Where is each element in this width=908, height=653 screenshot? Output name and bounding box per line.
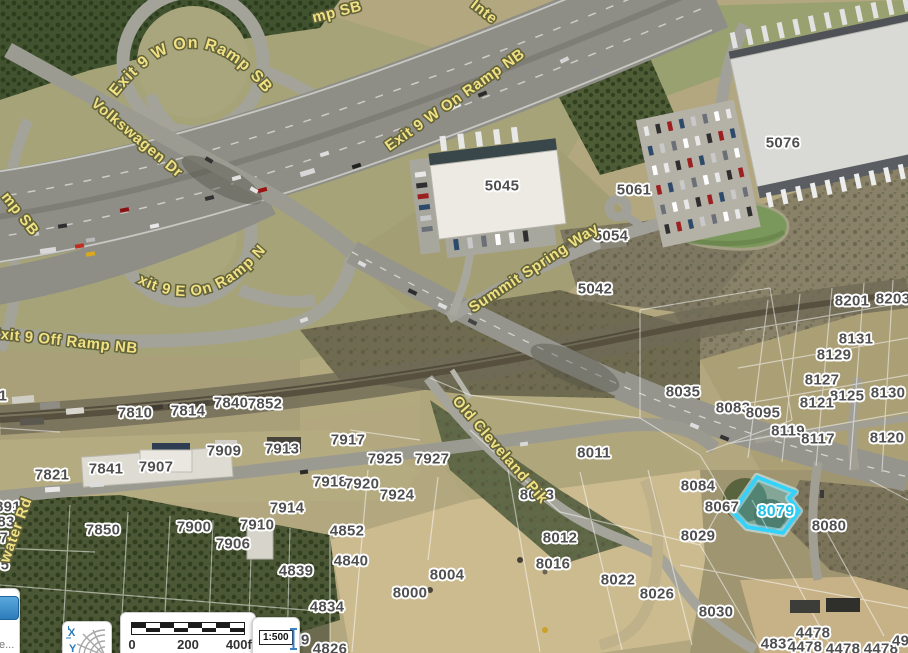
svg-text:X: X bbox=[68, 627, 76, 639]
scale-bar-graphic bbox=[131, 622, 245, 635]
xy-coordinates-button[interactable]: X Y bbox=[62, 621, 112, 653]
blue-tool-icon[interactable] bbox=[0, 596, 19, 620]
scale-ibeam-icon bbox=[289, 626, 298, 652]
aerial-map: Exit 9 W On Ramp SB Exit 9 E On Ramp NB bbox=[0, 0, 908, 653]
map-scale-indicator[interactable]: 1:500 bbox=[252, 617, 300, 653]
svg-text:Y: Y bbox=[69, 643, 77, 653]
globe-grid-icon: X Y bbox=[63, 622, 109, 653]
partial-panel-label: e... bbox=[0, 639, 14, 651]
scale-tick-200: 200 bbox=[177, 637, 199, 652]
scale-bar: 0 200 400ft bbox=[120, 612, 256, 653]
scale-ratio-value[interactable]: 1:500 bbox=[259, 630, 293, 645]
map-viewport[interactable]: Exit 9 W On Ramp SB Exit 9 E On Ramp NB … bbox=[0, 0, 908, 653]
scale-tick-0: 0 bbox=[128, 637, 135, 652]
partial-tool-panel[interactable]: e... bbox=[0, 588, 20, 653]
